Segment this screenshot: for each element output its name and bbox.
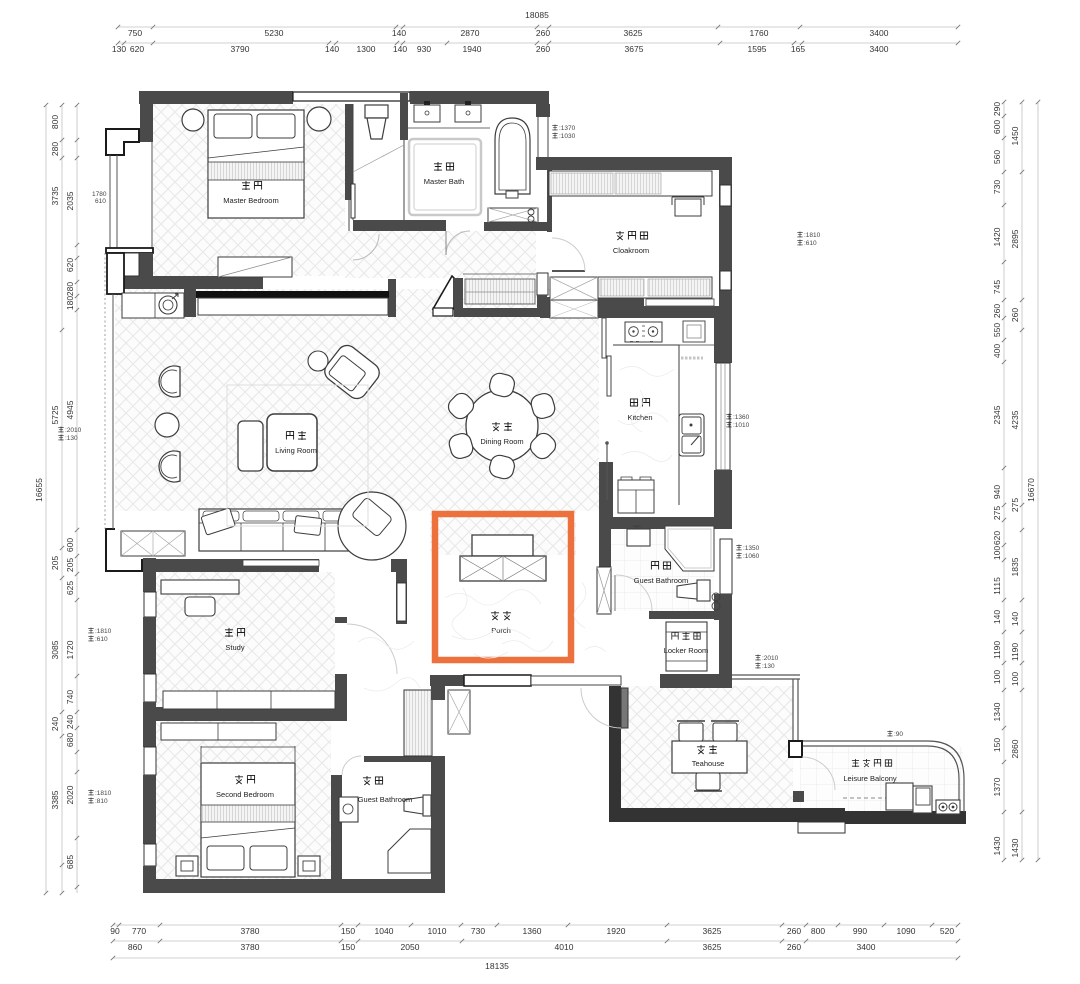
svg-text::1360: :1360: [733, 414, 750, 421]
svg-text:800: 800: [50, 115, 60, 129]
svg-text:240: 240: [65, 715, 75, 729]
svg-text:Cloakroom: Cloakroom: [613, 246, 649, 255]
svg-text::610: :610: [804, 240, 817, 247]
svg-text:1190: 1190: [1010, 643, 1020, 662]
svg-text:800: 800: [811, 926, 825, 936]
svg-text:3085: 3085: [50, 640, 60, 659]
svg-text:275: 275: [992, 506, 1002, 520]
svg-text:1780: 1780: [92, 191, 107, 198]
svg-text:3780: 3780: [241, 942, 260, 952]
svg-text:1190: 1190: [992, 641, 1002, 660]
svg-text:620: 620: [130, 44, 144, 54]
svg-text:140: 140: [393, 44, 407, 54]
svg-text::130: :130: [65, 435, 78, 442]
svg-text:240: 240: [50, 717, 60, 731]
svg-text:3625: 3625: [703, 942, 722, 952]
svg-text::1350: :1350: [743, 545, 760, 552]
svg-text:1760: 1760: [750, 28, 769, 38]
svg-text:260: 260: [536, 44, 550, 54]
svg-text:Guest Bathroom: Guest Bathroom: [634, 576, 689, 585]
svg-text:4945: 4945: [65, 400, 75, 419]
svg-text:260: 260: [536, 28, 550, 38]
svg-text::130: :130: [762, 663, 775, 670]
svg-text:150: 150: [341, 926, 355, 936]
svg-text:990: 990: [853, 926, 867, 936]
svg-text::1810: :1810: [95, 790, 112, 797]
svg-text:3790: 3790: [231, 44, 250, 54]
svg-text::1010: :1010: [733, 422, 750, 429]
svg-text:1340: 1340: [992, 702, 1002, 721]
svg-text:600: 600: [992, 120, 1002, 134]
svg-text:150: 150: [992, 738, 1002, 752]
svg-text:90: 90: [110, 926, 120, 936]
svg-text:620: 620: [992, 531, 1002, 545]
svg-text:1940: 1940: [463, 44, 482, 54]
svg-text:730: 730: [471, 926, 485, 936]
svg-text:745: 745: [992, 280, 1002, 294]
svg-text::1030: :1030: [559, 133, 576, 140]
svg-text:Teahouse: Teahouse: [692, 759, 725, 768]
svg-text:16655: 16655: [34, 478, 44, 502]
svg-text::610: :610: [95, 636, 108, 643]
svg-text:680: 680: [65, 733, 75, 747]
svg-text:Master Bath: Master Bath: [424, 177, 464, 186]
svg-text:560: 560: [992, 150, 1002, 164]
svg-text:740: 740: [65, 690, 75, 704]
svg-text::1810: :1810: [804, 232, 821, 239]
svg-text:140: 140: [325, 44, 339, 54]
svg-text:1430: 1430: [992, 836, 1002, 855]
svg-text:940: 940: [992, 485, 1002, 499]
svg-text:2860: 2860: [1010, 739, 1020, 758]
svg-text:730: 730: [992, 180, 1002, 194]
svg-text:2035: 2035: [65, 191, 75, 210]
svg-text:205: 205: [50, 556, 60, 570]
svg-text:3735: 3735: [50, 186, 60, 205]
svg-text:100: 100: [992, 546, 1002, 560]
svg-text:1430: 1430: [1010, 838, 1020, 857]
svg-text:Master Bedroom: Master Bedroom: [223, 196, 278, 205]
svg-text:600: 600: [65, 538, 75, 552]
svg-text:140: 140: [392, 28, 406, 38]
svg-text:930: 930: [417, 44, 431, 54]
svg-text:140: 140: [1010, 612, 1020, 626]
svg-text:1370: 1370: [992, 777, 1002, 796]
svg-text:5725: 5725: [50, 405, 60, 424]
svg-text:205: 205: [65, 558, 75, 572]
svg-text:1720: 1720: [65, 640, 75, 659]
svg-text:275: 275: [1010, 498, 1020, 512]
svg-text:Locker Room: Locker Room: [664, 646, 709, 655]
svg-text:3675: 3675: [625, 44, 644, 54]
svg-text:1920: 1920: [607, 926, 626, 936]
svg-text:290: 290: [992, 102, 1002, 116]
svg-text:Living Room: Living Room: [275, 446, 317, 455]
svg-text:Guest Bathroom: Guest Bathroom: [358, 795, 413, 804]
svg-text:260: 260: [1010, 308, 1020, 322]
svg-text::2010: :2010: [65, 427, 82, 434]
svg-text:1835: 1835: [1010, 557, 1020, 576]
svg-text:2020: 2020: [65, 785, 75, 804]
svg-text:2870: 2870: [461, 28, 480, 38]
svg-text:180: 180: [65, 296, 75, 310]
svg-text:3625: 3625: [703, 926, 722, 936]
svg-text:100: 100: [1010, 672, 1020, 686]
svg-text:1090: 1090: [897, 926, 916, 936]
svg-text:2345: 2345: [992, 405, 1002, 424]
svg-text:610: 610: [95, 198, 106, 205]
svg-text:1300: 1300: [357, 44, 376, 54]
svg-text:Second Bedroom: Second Bedroom: [216, 790, 274, 799]
svg-text:3780: 3780: [241, 926, 260, 936]
svg-text:260: 260: [787, 926, 801, 936]
svg-text:4235: 4235: [1010, 410, 1020, 429]
svg-text:140: 140: [992, 610, 1002, 624]
svg-text:280: 280: [65, 282, 75, 296]
svg-text:18085: 18085: [525, 10, 549, 20]
svg-text:1360: 1360: [523, 926, 542, 936]
svg-text:5230: 5230: [265, 28, 284, 38]
svg-text:130: 130: [112, 44, 126, 54]
svg-text:1040: 1040: [375, 926, 394, 936]
svg-text:1010: 1010: [428, 926, 447, 936]
svg-text:400: 400: [992, 344, 1002, 358]
svg-text:3400: 3400: [870, 44, 889, 54]
svg-text:3385: 3385: [50, 790, 60, 809]
svg-text:2050: 2050: [401, 942, 420, 952]
svg-text:550: 550: [992, 323, 1002, 337]
svg-text::2010: :2010: [762, 655, 779, 662]
svg-text:860: 860: [128, 942, 142, 952]
svg-text:18135: 18135: [485, 961, 509, 971]
svg-text:165: 165: [791, 44, 805, 54]
svg-text:625: 625: [65, 581, 75, 595]
svg-text:100: 100: [992, 670, 1002, 684]
svg-text:1595: 1595: [748, 44, 767, 54]
svg-text:1420: 1420: [992, 227, 1002, 246]
svg-text:150: 150: [341, 942, 355, 952]
svg-text::1810: :1810: [95, 628, 112, 635]
svg-text::810: :810: [95, 798, 108, 805]
svg-text:3625: 3625: [624, 28, 643, 38]
svg-text:1115: 1115: [992, 577, 1002, 595]
svg-text:280: 280: [50, 142, 60, 156]
svg-text:260: 260: [787, 942, 801, 952]
svg-text:Dining Room: Dining Room: [480, 437, 523, 446]
svg-text:260: 260: [992, 304, 1002, 318]
svg-text::1060: :1060: [743, 553, 760, 560]
svg-text:4010: 4010: [555, 942, 574, 952]
svg-text:3400: 3400: [870, 28, 889, 38]
svg-text:1450: 1450: [1010, 126, 1020, 145]
svg-text::90: :90: [894, 731, 903, 738]
svg-text:685: 685: [65, 855, 75, 869]
svg-text:3400: 3400: [857, 942, 876, 952]
svg-text:620: 620: [65, 258, 75, 272]
svg-text:Study: Study: [225, 643, 244, 652]
svg-text:750: 750: [128, 28, 142, 38]
svg-text:Leisure Balcony: Leisure Balcony: [843, 774, 897, 783]
svg-text:770: 770: [132, 926, 146, 936]
svg-text::1370: :1370: [559, 125, 576, 132]
svg-text:2895: 2895: [1010, 229, 1020, 248]
svg-text:16670: 16670: [1026, 478, 1036, 502]
svg-text:520: 520: [940, 926, 954, 936]
